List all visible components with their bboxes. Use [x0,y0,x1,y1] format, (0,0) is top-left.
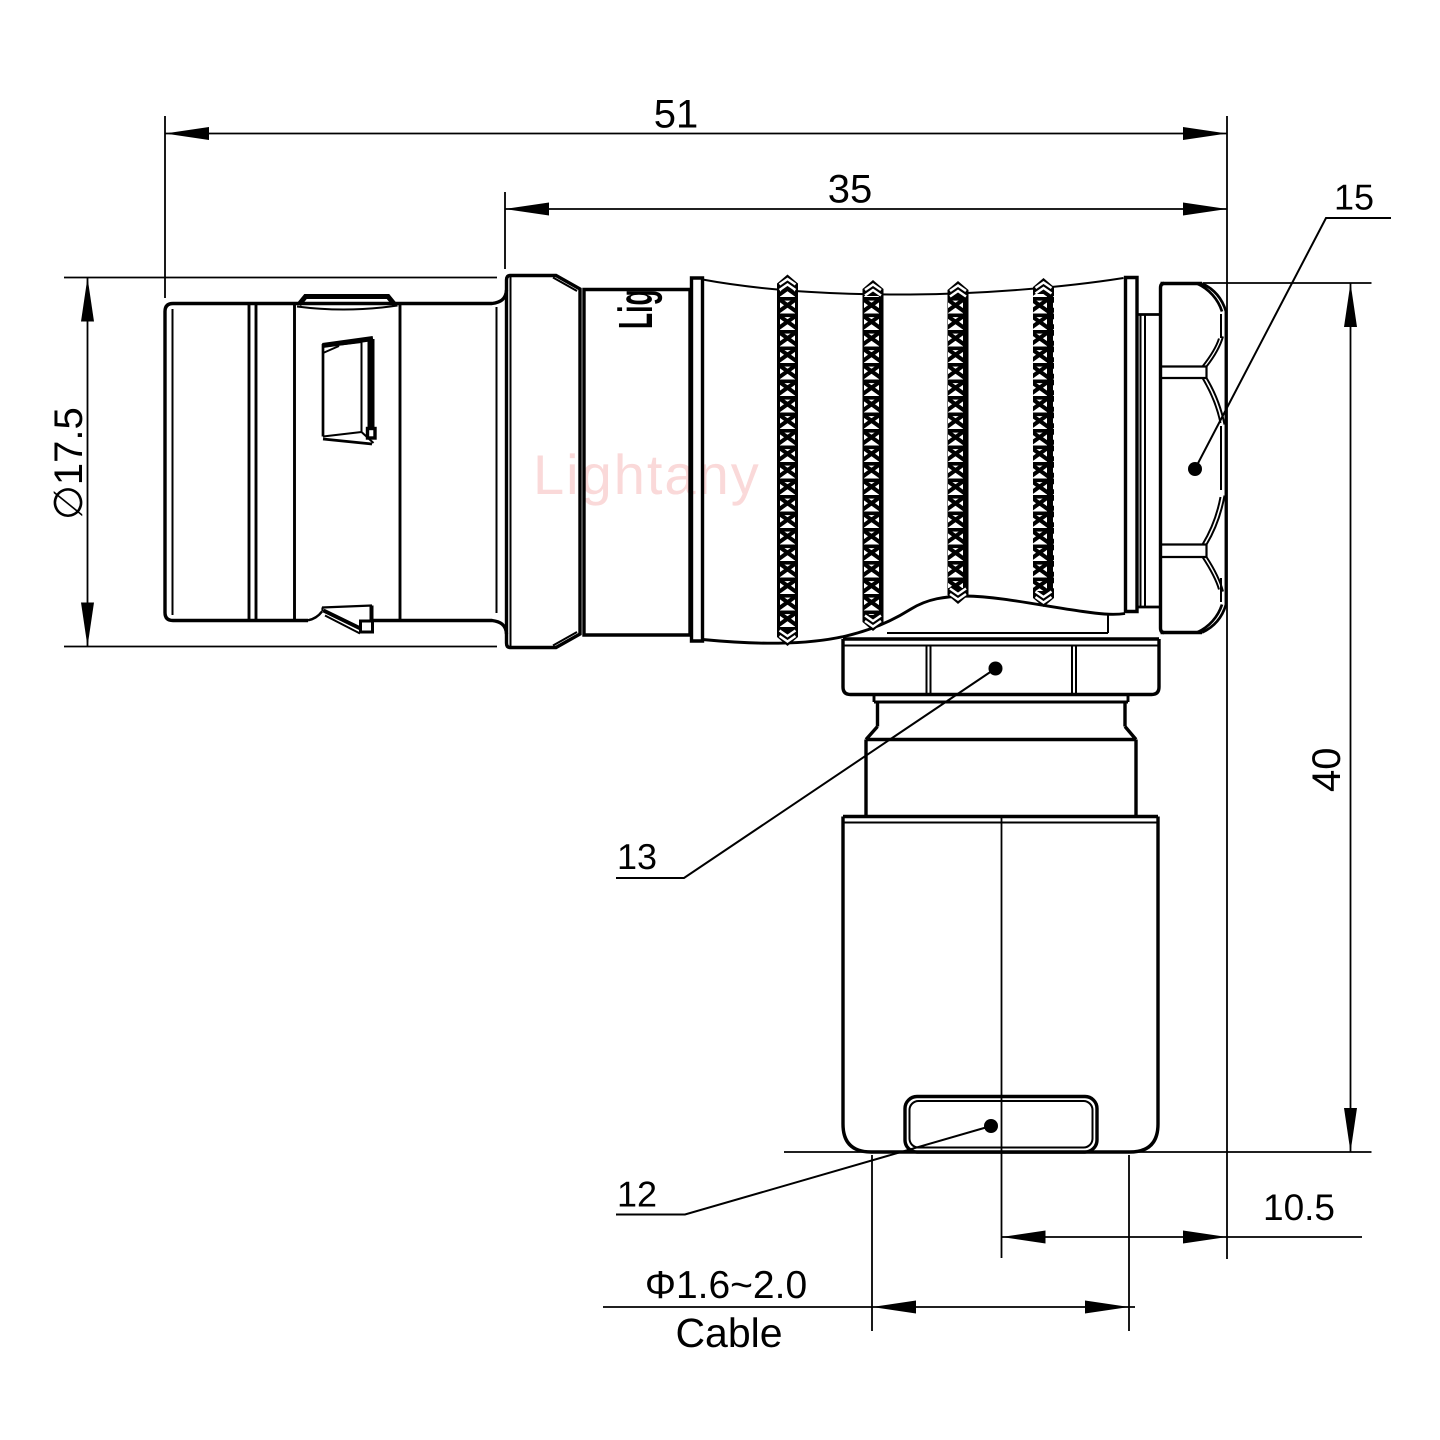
svg-text:51: 51 [654,93,699,137]
svg-text:10.5: 10.5 [1263,1187,1335,1228]
svg-text:15: 15 [1334,177,1374,218]
svg-text:Lig: Lig [610,289,663,329]
svg-text:40: 40 [1305,748,1349,793]
svg-text:13: 13 [617,836,657,877]
svg-text:Lightany: Lightany [533,443,761,506]
svg-text:Φ1.6~2.0: Φ1.6~2.0 [645,1264,807,1307]
svg-text:Cable: Cable [675,1310,782,1356]
svg-text:12: 12 [617,1174,657,1215]
svg-text:∅17.5: ∅17.5 [47,407,91,520]
svg-text:35: 35 [828,168,873,212]
